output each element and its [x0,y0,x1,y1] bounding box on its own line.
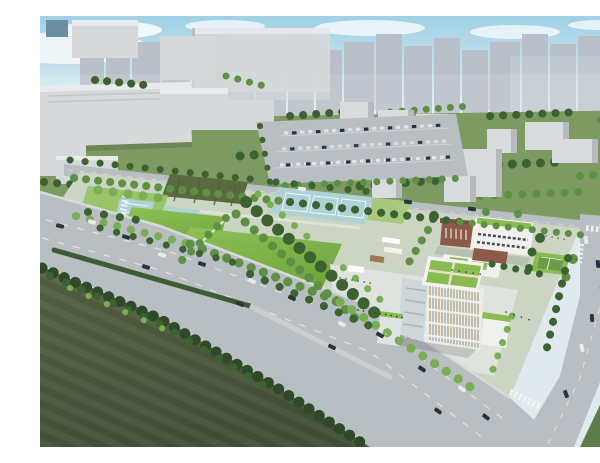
cloud [315,20,425,36]
aerial-rendering [40,16,600,447]
side-facade [398,278,428,342]
blue-box-building [46,20,68,37]
parking-lot [256,114,468,186]
rendering-canvas [40,16,600,447]
car [590,314,594,322]
court-apron [367,198,410,224]
